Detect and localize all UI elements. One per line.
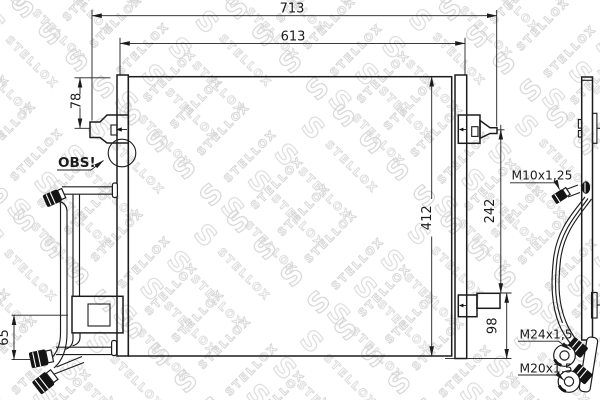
thread-lower-label: M20x1,5	[520, 362, 573, 376]
dim-bottom-offset-value: 98	[485, 318, 500, 335]
m20-port-bore	[564, 377, 573, 386]
dim-core-width-value: 613	[281, 29, 306, 44]
dim-inlet-offset-value: 78	[70, 93, 85, 110]
thread-upper-label: M10x1,25	[512, 169, 573, 183]
thread-middle-label: M24x1,5	[520, 328, 573, 342]
m24-port-bore	[560, 351, 569, 360]
pipe-flange-upper	[112, 183, 117, 198]
watermark-layer-se	[0, 0, 600, 400]
hose-clamp	[582, 181, 590, 193]
condenser-drawing-page: S STELLOX S STELLOX	[0, 0, 600, 400]
dim-overall-width-value: 713	[280, 2, 305, 17]
pipe-flange-lower	[112, 341, 117, 356]
obs-label: OBS!	[58, 155, 96, 171]
dim-left-port-span-value: 65	[0, 329, 12, 346]
dim-port-span-value: 242	[483, 199, 498, 224]
condenser-technical-drawing: S STELLOX S STELLOX	[0, 0, 600, 400]
dim-core-height-value: 412	[420, 205, 435, 230]
